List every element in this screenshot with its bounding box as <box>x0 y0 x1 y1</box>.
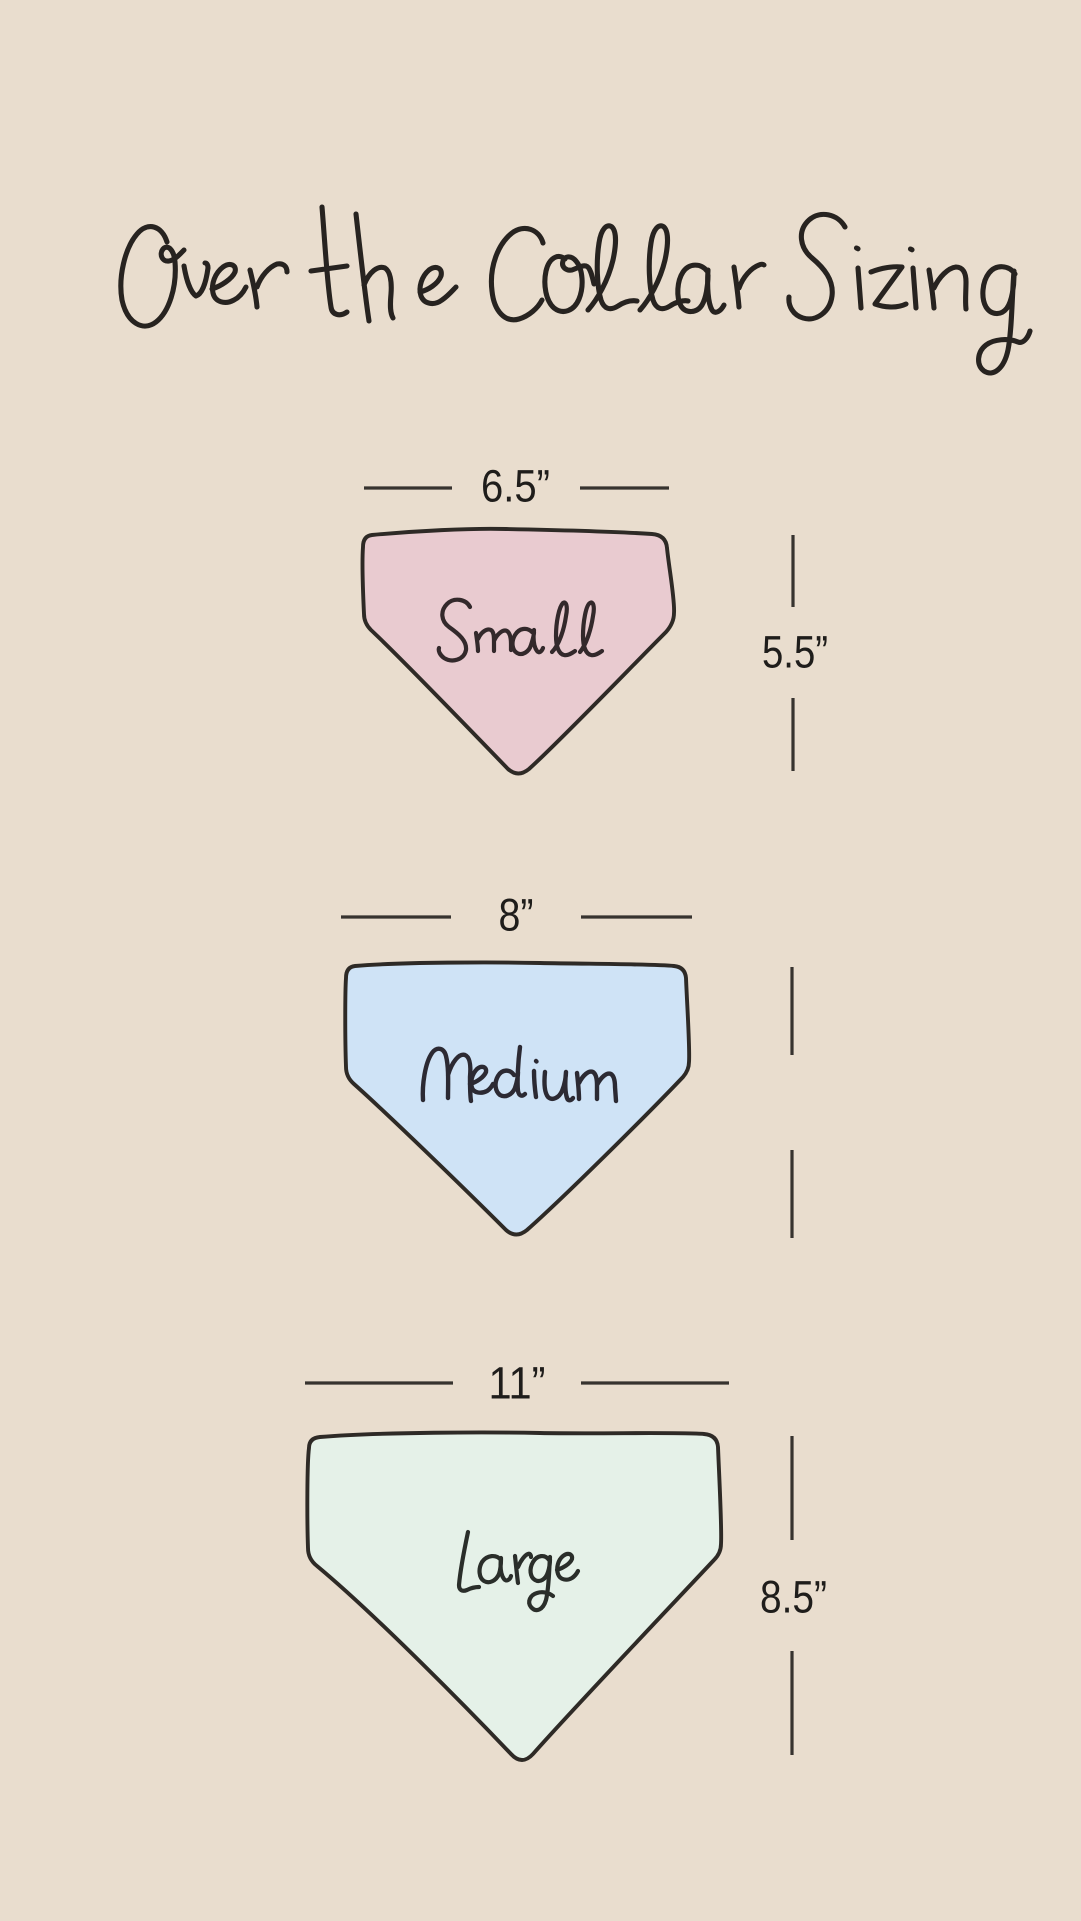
svg-text:11”: 11” <box>489 1358 546 1409</box>
svg-text:5.5”: 5.5” <box>762 627 828 678</box>
svg-text:6.5”: 6.5” <box>481 461 550 512</box>
svg-text:8.5”: 8.5” <box>760 1572 827 1623</box>
svg-text:8”: 8” <box>499 890 534 941</box>
